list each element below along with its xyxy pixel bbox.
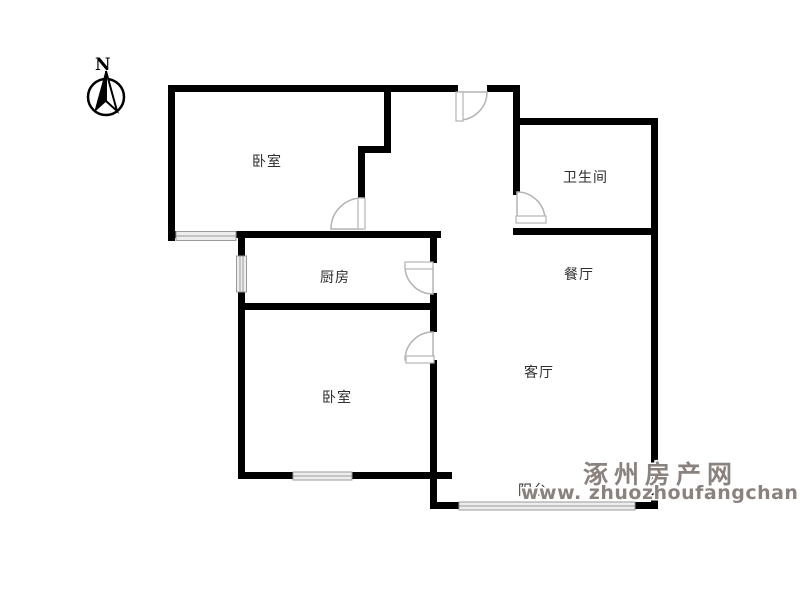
wall [430,293,437,332]
wall [513,228,658,235]
wall [234,231,441,238]
wall [238,291,245,479]
entry-door-swing [456,92,487,121]
wall [384,88,391,152]
wall [358,150,365,198]
room-label-bedroom-bottom: 卧室 [322,387,352,407]
compass-north-label: N [95,55,111,75]
wall [238,472,294,479]
walls [168,85,658,509]
floor-plan-canvas: N 卧室 卫生间 厨房 餐厅 客厅 卧室 阳台 涿州房产网 www. zhuoz… [0,0,800,600]
door-swing [516,192,546,223]
wall [168,85,458,92]
room-label-living: 客厅 [524,362,554,382]
wall [238,231,245,258]
wall [513,85,520,195]
door-swing [405,262,433,294]
window [237,256,247,292]
wall [430,231,437,263]
room-label-dining: 餐厅 [564,264,594,284]
wall [168,85,175,241]
wall [651,118,658,509]
room-label-kitchen: 厨房 [320,267,350,287]
window [176,232,236,241]
wall [430,360,437,509]
watermark-url: www. zhuozhoufangchan. com [521,482,800,504]
room-label-bedroom-top: 卧室 [252,151,282,171]
wall [352,472,452,479]
wall [430,502,461,509]
window [293,472,352,480]
door-swing [405,332,434,363]
north-compass-icon [88,71,124,115]
room-label-bathroom: 卫生间 [563,167,608,187]
door-swing [331,198,365,229]
floor-plan-drawing [0,0,800,600]
wall [513,118,658,125]
wall [238,303,437,310]
